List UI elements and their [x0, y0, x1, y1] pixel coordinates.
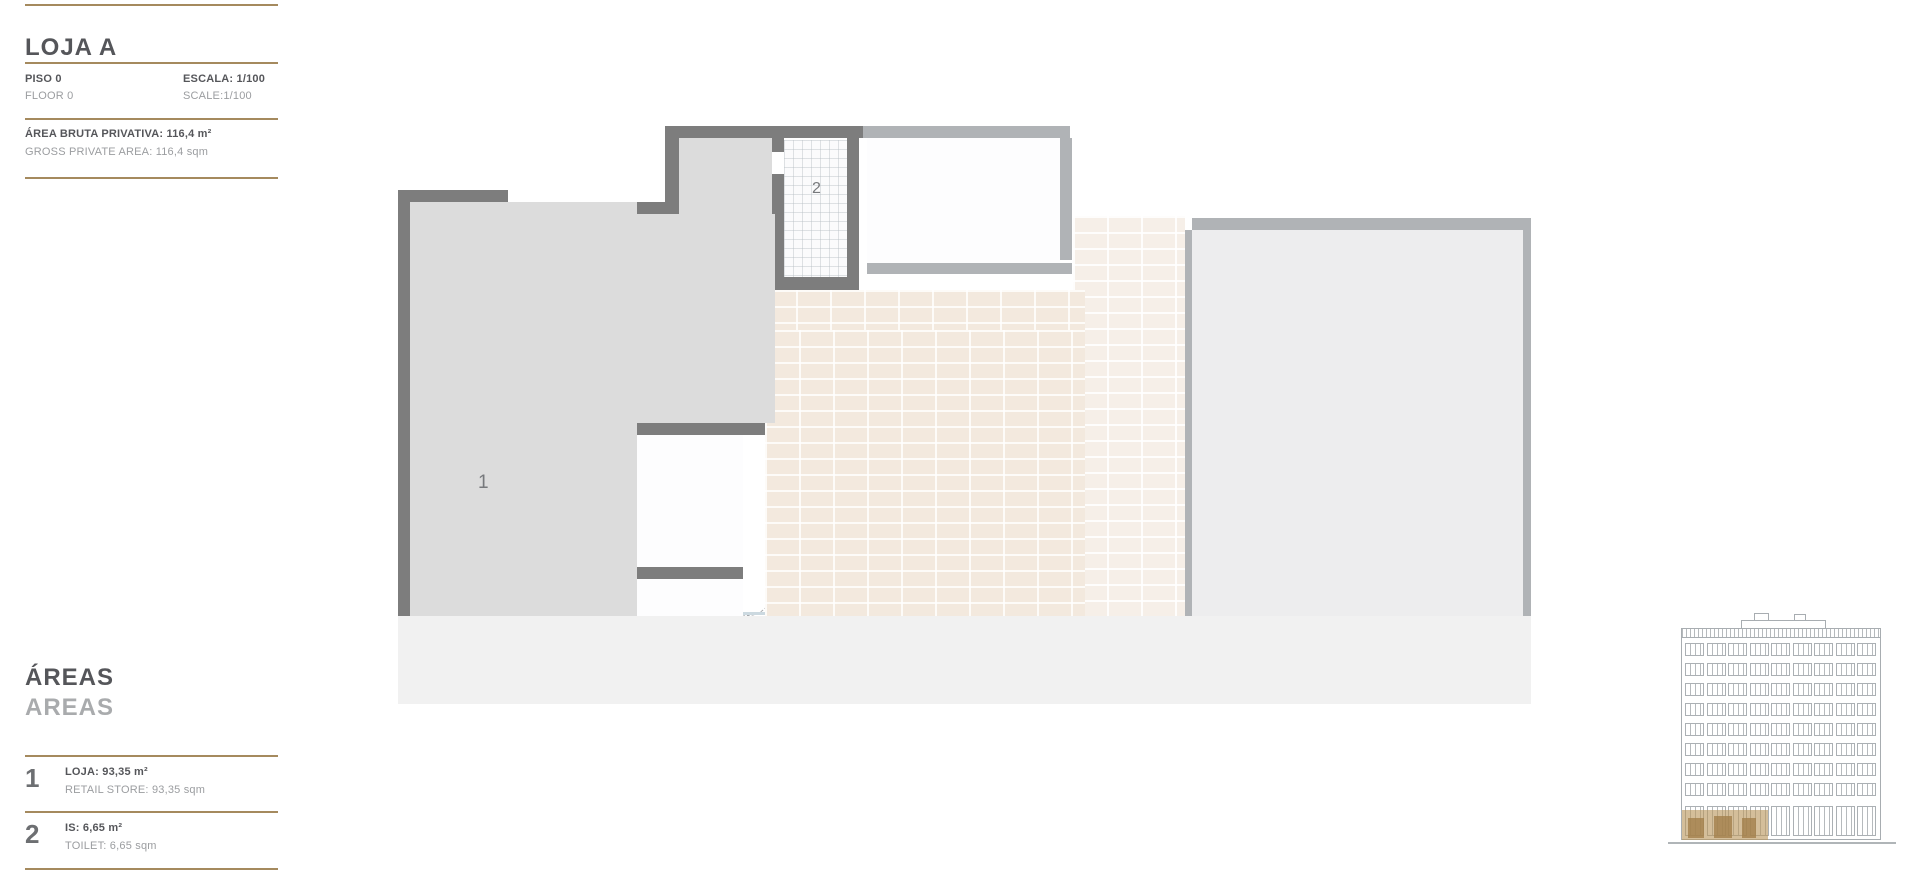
legend-item-label-en: TOILET: 6,65 sqm — [65, 840, 157, 852]
elevation-window — [1814, 703, 1833, 716]
roof-structure — [1754, 613, 1769, 621]
gross-area-pt: ÁREA BRUTA PRIVATIVA: 116,4 m² — [25, 128, 212, 140]
elevation-window — [1771, 703, 1790, 716]
elevation-window — [1814, 663, 1833, 676]
floor-plan-sheet: LOJA A PISO 0 FLOOR 0 ESCALA: 1/100 SCAL… — [0, 0, 1920, 881]
adjacent-unit-floor — [1192, 230, 1523, 616]
elevation-ground-window — [1836, 806, 1855, 836]
divider — [25, 4, 278, 6]
elevation-window — [1750, 683, 1769, 696]
unit-location-window — [1742, 818, 1756, 838]
divider — [25, 755, 278, 757]
elevation-window — [1793, 783, 1812, 796]
elevation-window — [1814, 783, 1833, 796]
elevation-window — [1728, 663, 1747, 676]
elevation-ground-window — [1814, 806, 1833, 836]
elevation-window — [1793, 703, 1812, 716]
divider — [25, 118, 278, 120]
elevation-window — [1857, 783, 1876, 796]
elevation-window — [1728, 703, 1747, 716]
elevation-window — [1685, 703, 1704, 716]
elevation-window — [1750, 643, 1769, 656]
retail-floor — [637, 214, 775, 423]
elevation-window — [1857, 703, 1876, 716]
elevation-window — [1814, 643, 1833, 656]
unit-location-window — [1714, 816, 1732, 838]
elevation-window — [1685, 763, 1704, 776]
elevation-window — [1728, 783, 1747, 796]
lobby-corridor-floor — [765, 330, 1085, 616]
elevation-window — [1814, 723, 1833, 736]
building-elevation — [1668, 598, 1896, 850]
common-hall-floor — [1073, 216, 1185, 616]
elevation-window — [1793, 723, 1812, 736]
elevation-window — [1836, 723, 1855, 736]
adjacent-unit-wall — [1192, 218, 1531, 230]
elevation-window — [1857, 643, 1876, 656]
stairwell-floor — [867, 138, 1060, 263]
elevation-window — [1771, 683, 1790, 696]
elevation-window — [1750, 763, 1769, 776]
elevation-window — [1707, 703, 1726, 716]
elevation-window — [1685, 683, 1704, 696]
legend-item-label-en: RETAIL STORE: 93,35 sqm — [65, 784, 205, 796]
areas-title-pt: ÁREAS — [25, 664, 114, 692]
elevation-window — [1685, 783, 1704, 796]
elevation-window — [1707, 643, 1726, 656]
elevation-window — [1857, 743, 1876, 756]
legend-item-number: 2 — [25, 819, 39, 850]
elevation-window — [1793, 743, 1812, 756]
unit-wall — [637, 567, 743, 579]
floor-label-en: FLOOR 0 — [25, 90, 73, 102]
elevation-window — [1836, 743, 1855, 756]
elevation-window — [1814, 743, 1833, 756]
elevation-window — [1857, 763, 1876, 776]
elevation-ground-window — [1793, 806, 1812, 836]
elevation-window — [1707, 743, 1726, 756]
elevation-window — [1750, 743, 1769, 756]
elevation-window — [1771, 743, 1790, 756]
stairwell-wall — [863, 126, 1070, 138]
page-title: LOJA A — [25, 34, 117, 62]
stairwell-wall — [867, 263, 1072, 274]
unit-wall — [772, 138, 784, 152]
service-room — [637, 579, 743, 616]
elevation-window — [1728, 743, 1747, 756]
elevation-window — [1836, 783, 1855, 796]
divider — [25, 177, 278, 179]
elevation-window — [1750, 783, 1769, 796]
floor-label-pt: PISO 0 — [25, 73, 62, 85]
elevation-ground-window — [1771, 806, 1790, 836]
elevation-window — [1685, 663, 1704, 676]
floor-plan-drawing: 1 2 — [398, 122, 1531, 704]
elevation-window — [1857, 723, 1876, 736]
stairwell-wall — [1060, 138, 1072, 260]
elevation-window — [1707, 663, 1726, 676]
ground-line — [1668, 842, 1896, 844]
elevation-window — [1728, 723, 1747, 736]
elevation-window — [1707, 783, 1726, 796]
unit-wall — [398, 190, 508, 202]
elevation-window — [1814, 683, 1833, 696]
unit-location-window — [1688, 818, 1704, 838]
elevation-window — [1771, 783, 1790, 796]
areas-title-en: AREAS — [25, 694, 114, 722]
elevation-window — [1685, 723, 1704, 736]
unit-wall — [665, 126, 863, 138]
elevation-window — [1750, 703, 1769, 716]
elevation-window — [1771, 763, 1790, 776]
parapet-band — [1682, 629, 1880, 638]
elevation-window — [1793, 663, 1812, 676]
elevation-window — [1771, 723, 1790, 736]
elevation-window — [1728, 763, 1747, 776]
elevation-window — [1857, 663, 1876, 676]
scale-label-pt: ESCALA: 1/100 — [183, 73, 265, 85]
unit-wall — [398, 190, 410, 616]
elevation-window — [1707, 723, 1726, 736]
legend-item-label-pt: IS: 6,65 m² — [65, 822, 122, 834]
elevation-window — [1814, 763, 1833, 776]
elevation-window — [1836, 663, 1855, 676]
sidewalk — [398, 616, 1531, 704]
adjacent-unit-wall — [1523, 230, 1531, 616]
adjacent-unit-wall — [1185, 230, 1192, 616]
elevation-window — [1793, 683, 1812, 696]
legend-item-label-pt: LOJA: 93,35 m² — [65, 766, 148, 778]
gross-area-en: GROSS PRIVATE AREA: 116,4 sqm — [25, 146, 208, 158]
scale-label-en: SCALE:1/100 — [183, 90, 252, 102]
elevation-window — [1771, 663, 1790, 676]
elevation-window — [1836, 763, 1855, 776]
room-label-toilet: 2 — [812, 180, 821, 198]
divider — [25, 811, 278, 813]
elevation-ground-window — [1857, 806, 1876, 836]
unit-wall — [625, 423, 783, 435]
retail-floor — [679, 138, 772, 214]
elevation-window — [1750, 723, 1769, 736]
elevation-window — [1771, 643, 1790, 656]
toilet-room-floor — [784, 140, 847, 277]
elevation-window — [1728, 643, 1747, 656]
unit-wall — [772, 277, 859, 290]
retail-floor — [410, 202, 637, 616]
unit-wall — [847, 138, 859, 290]
elevation-window — [1728, 683, 1747, 696]
elevation-window — [1750, 663, 1769, 676]
unit-wall — [665, 126, 679, 214]
roof-structure — [1741, 620, 1826, 629]
legend-item-number: 1 — [25, 763, 39, 794]
elevation-window — [1836, 683, 1855, 696]
elevation-window — [1685, 643, 1704, 656]
divider — [25, 62, 278, 64]
roof-structure — [1794, 614, 1806, 621]
elevation-window — [1836, 643, 1855, 656]
elevation-window — [1857, 683, 1876, 696]
service-room — [637, 435, 743, 567]
elevation-window — [1836, 703, 1855, 716]
elevation-window — [1707, 683, 1726, 696]
room-label-retail: 1 — [478, 472, 489, 494]
divider — [25, 868, 278, 870]
elevation-window — [1707, 763, 1726, 776]
elevation-window — [1793, 643, 1812, 656]
elevation-window — [1793, 763, 1812, 776]
elevation-window — [1685, 743, 1704, 756]
